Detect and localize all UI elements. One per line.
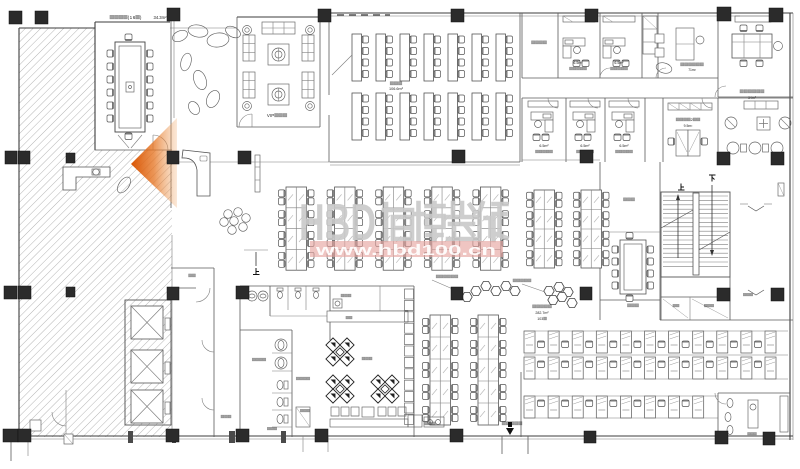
svg-text:106.6m²: 106.6m² (389, 87, 404, 91)
svg-text:6.5m²: 6.5m² (580, 144, 590, 148)
svg-text:6.5m²: 6.5m² (573, 61, 583, 65)
svg-text:6.5m²: 6.5m² (539, 144, 549, 148)
svg-text:71m²: 71m² (688, 68, 696, 72)
svg-text:103: 103 (537, 317, 543, 321)
svg-text:282.7m²: 282.7m² (535, 311, 549, 315)
svg-text:6.5m²: 6.5m² (619, 144, 629, 148)
svg-text:(16: (16 (128, 15, 136, 20)
svg-text:6.5m²: 6.5m² (614, 61, 624, 65)
svg-text:9.5m²: 9.5m² (684, 124, 693, 128)
svg-text:VIP: VIP (267, 113, 274, 118)
svg-text:2: 2 (691, 118, 693, 122)
svg-text:www.hbd100.cn: www.hbd100.cn (314, 242, 496, 259)
svg-text:34.3m²: 34.3m² (153, 15, 167, 20)
